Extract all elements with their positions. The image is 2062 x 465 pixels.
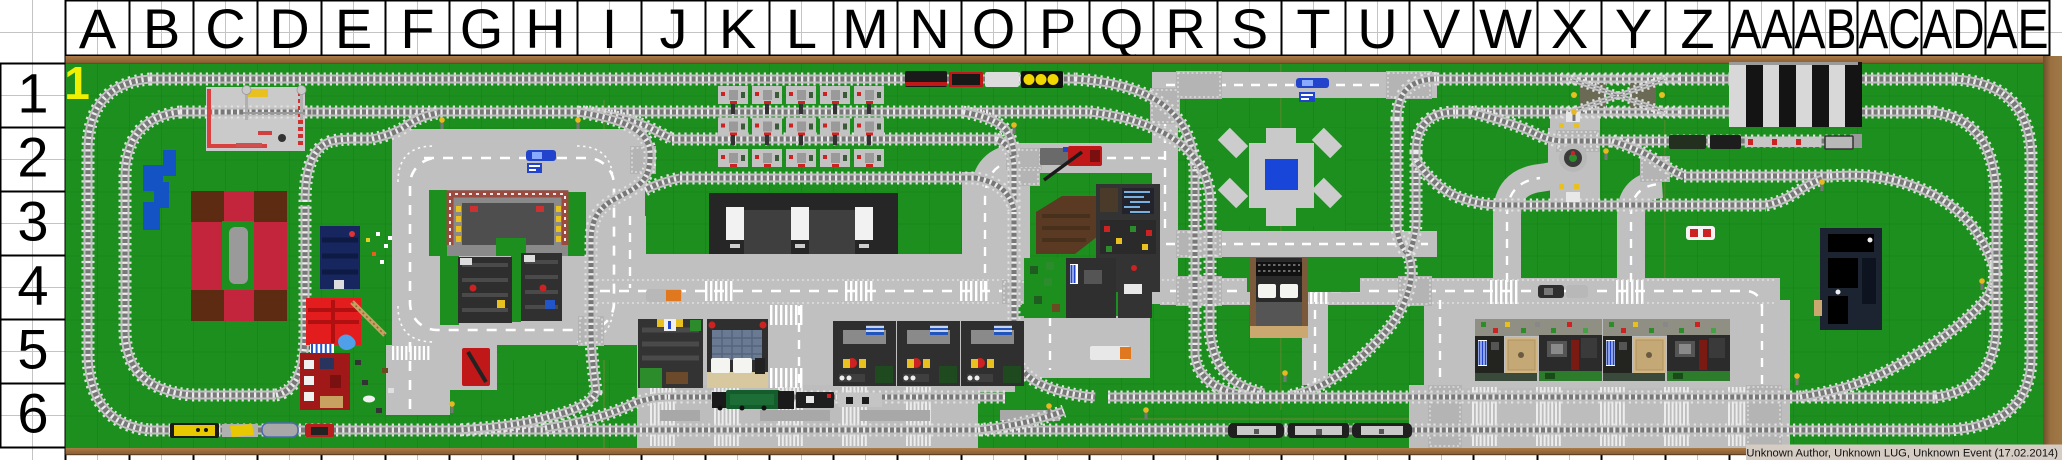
svg-text:Y: Y [1615, 0, 1652, 60]
svg-text:4: 4 [17, 254, 48, 317]
svg-text:M: M [842, 0, 889, 60]
svg-text:P: P [1039, 0, 1076, 60]
svg-text:H: H [525, 0, 565, 60]
svg-text:AB: AB [1795, 0, 1857, 60]
svg-text:1: 1 [17, 62, 48, 125]
svg-text:O: O [972, 0, 1016, 60]
svg-text:E: E [335, 0, 372, 60]
svg-text:K: K [719, 0, 756, 60]
svg-text:Unknown Author, Unknown LUG, U: Unknown Author, Unknown LUG, Unknown Eve… [1746, 448, 2058, 460]
svg-text:L: L [786, 0, 817, 60]
svg-text:F: F [400, 0, 434, 60]
svg-text:Q: Q [1100, 0, 1144, 60]
svg-text:D: D [269, 0, 309, 60]
svg-text:R: R [1165, 0, 1205, 60]
svg-text:6: 6 [17, 382, 48, 445]
svg-text:J: J [660, 0, 688, 60]
svg-text:X: X [1551, 0, 1588, 60]
svg-text:AD: AD [1923, 0, 1985, 60]
svg-text:AC: AC [1859, 0, 1921, 60]
svg-text:G: G [460, 0, 504, 60]
svg-text:U: U [1357, 0, 1397, 60]
svg-text:V: V [1423, 0, 1461, 60]
svg-text:3: 3 [17, 190, 48, 253]
svg-text:5: 5 [17, 318, 48, 381]
svg-text:AA: AA [1731, 0, 1794, 60]
svg-text:W: W [1479, 0, 1532, 60]
svg-text:T: T [1296, 0, 1330, 60]
svg-text:A: A [79, 0, 117, 60]
svg-text:B: B [143, 0, 180, 60]
svg-text:Z: Z [1680, 0, 1714, 60]
svg-text:2: 2 [17, 126, 48, 189]
svg-text:1: 1 [64, 57, 90, 109]
svg-text:I: I [602, 0, 618, 60]
svg-text:AE: AE [1987, 0, 2049, 60]
svg-text:N: N [909, 0, 949, 60]
svg-text:C: C [205, 0, 245, 60]
svg-text:S: S [1231, 0, 1268, 60]
